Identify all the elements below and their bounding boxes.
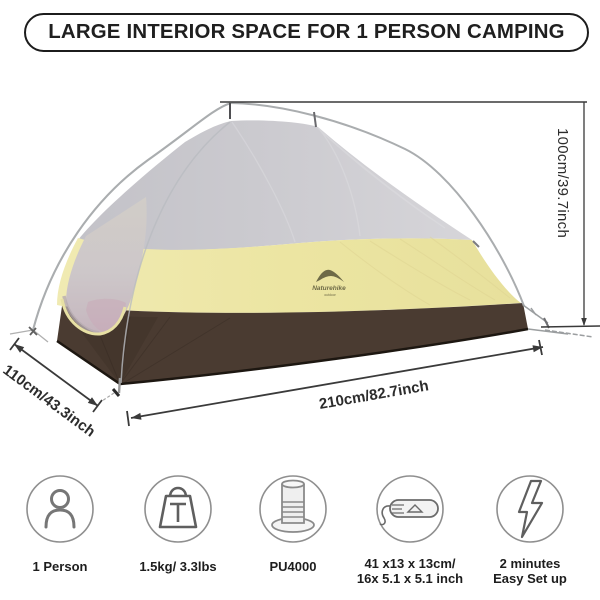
svg-text:1.5kg/ 3.3lbs: 1.5kg/ 3.3lbs (139, 559, 216, 574)
svg-text:outdoor: outdoor (324, 293, 336, 297)
svg-text:PU4000: PU4000 (270, 559, 317, 574)
svg-text:Easy Set up: Easy Set up (493, 571, 567, 586)
svg-text:16x 5.1 x 5.1 inch: 16x 5.1 x 5.1 inch (357, 571, 463, 586)
svg-text:Naturehike: Naturehike (312, 285, 346, 292)
svg-text:100cm/39.7inch: 100cm/39.7inch (554, 128, 571, 238)
svg-text:110cm/43.3inch: 110cm/43.3inch (0, 362, 98, 441)
svg-text:1 Person: 1 Person (33, 559, 88, 574)
svg-text:2 minutes: 2 minutes (500, 556, 561, 571)
svg-text:41 x13 x 13cm/: 41 x13 x 13cm/ (364, 556, 455, 571)
